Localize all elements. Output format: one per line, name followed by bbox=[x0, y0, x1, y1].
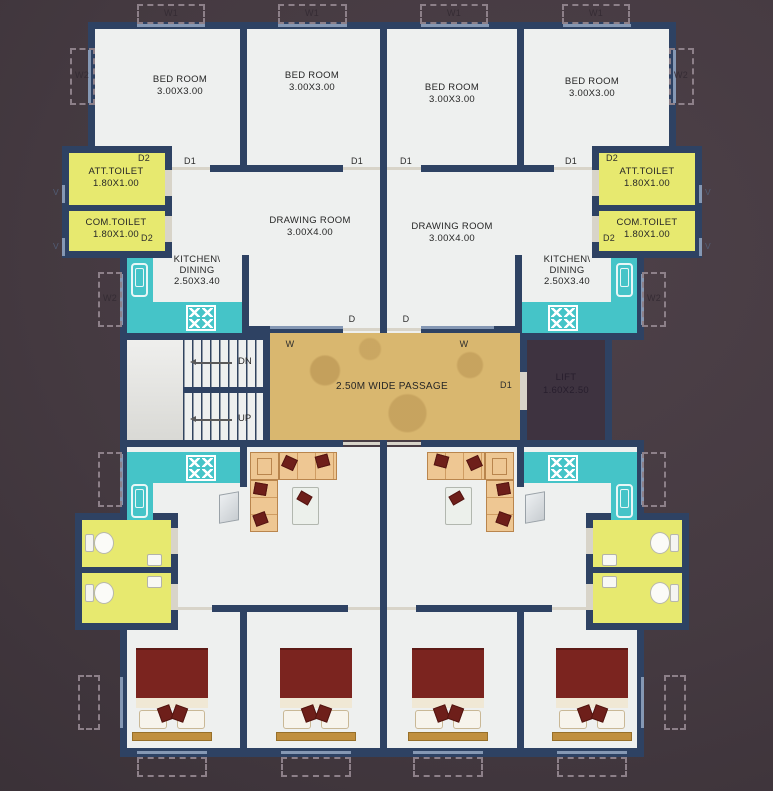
door-marker-d2: D2 bbox=[141, 233, 153, 244]
bed-blanket bbox=[280, 648, 352, 698]
lift-label: LIFT bbox=[556, 372, 577, 383]
drawing-room-right-dims: 3.00X4.00 bbox=[429, 233, 475, 244]
toilet-icon bbox=[85, 534, 94, 552]
com-toilet-left-label: COM.TOILET bbox=[86, 217, 147, 228]
up-arrow-icon bbox=[196, 419, 232, 421]
wall bbox=[515, 255, 522, 333]
wall bbox=[210, 165, 343, 172]
wall bbox=[380, 440, 387, 748]
att-toilet-left-dims: 1.80X1.00 bbox=[93, 178, 139, 189]
door-opening bbox=[586, 584, 593, 610]
door-marker-d: D bbox=[403, 314, 410, 325]
bedroom-3-dims: 3.00X3.00 bbox=[429, 94, 475, 105]
wall bbox=[212, 605, 348, 612]
sink-icon bbox=[616, 263, 633, 297]
window-projection bbox=[664, 675, 686, 730]
wall bbox=[120, 333, 127, 447]
dn-arrow-icon bbox=[196, 362, 232, 364]
vent-mark bbox=[699, 185, 702, 203]
stair-landing bbox=[127, 340, 183, 440]
bedroom-2-label: BED ROOM bbox=[285, 70, 339, 81]
window-projection bbox=[78, 675, 100, 730]
bed-sheet bbox=[412, 698, 484, 708]
wall bbox=[240, 29, 247, 172]
window-marker-w1: W1 bbox=[447, 8, 461, 19]
wall bbox=[421, 440, 522, 447]
wall bbox=[520, 440, 644, 447]
att-toilet-left-label: ATT.TOILET bbox=[89, 166, 144, 177]
stove-icon bbox=[548, 455, 578, 481]
door-leaf bbox=[219, 491, 239, 524]
basin-icon bbox=[602, 576, 617, 588]
wall bbox=[240, 612, 247, 748]
lift-door-opening bbox=[520, 372, 527, 410]
toilet-icon bbox=[94, 532, 114, 554]
door-opening bbox=[554, 167, 592, 170]
bed-base bbox=[552, 732, 632, 741]
vent-mark bbox=[62, 238, 65, 256]
wall bbox=[263, 333, 270, 447]
wall bbox=[380, 22, 387, 333]
window-projection bbox=[281, 757, 351, 777]
toilet-icon bbox=[650, 532, 670, 554]
com-toilet-right-label: COM.TOILET bbox=[617, 217, 678, 228]
door-marker-d1-lift: D1 bbox=[500, 380, 512, 391]
door-opening bbox=[165, 170, 172, 196]
drawing-room-left-dims: 3.00X4.00 bbox=[287, 227, 333, 238]
door-marker-d1: D1 bbox=[351, 156, 363, 167]
kitchen-counter-bot-left-h bbox=[127, 452, 240, 483]
door-opening bbox=[178, 607, 212, 610]
window-mark bbox=[421, 326, 494, 329]
bed-sheet bbox=[556, 698, 628, 708]
vent-marker-v: V bbox=[705, 187, 711, 198]
wall bbox=[242, 440, 343, 447]
window-projection bbox=[642, 452, 666, 507]
door-opening bbox=[165, 216, 172, 242]
bed-blanket bbox=[136, 648, 208, 698]
bedroom-3-label: BED ROOM bbox=[425, 82, 479, 93]
door-marker-d2: D2 bbox=[603, 233, 615, 244]
door-marker-d1: D1 bbox=[184, 156, 196, 167]
sink-icon bbox=[131, 484, 148, 518]
stove-icon bbox=[186, 305, 216, 331]
drawing-room-left-label: DRAWING ROOM bbox=[269, 215, 350, 226]
wall bbox=[605, 333, 612, 447]
kitchen-right-label1: KITCHEN\ bbox=[544, 254, 591, 265]
wall bbox=[517, 29, 524, 172]
window-mark bbox=[270, 326, 343, 329]
wall bbox=[240, 447, 247, 487]
window-mark bbox=[281, 751, 351, 754]
kitchen-left-label1: KITCHEN\ bbox=[174, 254, 221, 265]
kitchen-right-dims: 2.50X3.40 bbox=[544, 276, 590, 287]
stair-mid-wall bbox=[183, 387, 263, 393]
kitchen-counter-top-right-h bbox=[522, 302, 637, 333]
window-mark bbox=[641, 677, 644, 728]
window-marker-w1: W1 bbox=[589, 8, 603, 19]
passage-label: 2.50M WIDE PASSAGE bbox=[336, 381, 448, 392]
door-marker-d: D bbox=[349, 314, 356, 325]
window-marker-w2: W2 bbox=[75, 70, 89, 81]
sofa-corner-table bbox=[250, 452, 279, 480]
door-opening bbox=[343, 328, 380, 331]
att-toilet-right-label: ATT.TOILET bbox=[620, 166, 675, 177]
toilet-icon bbox=[670, 534, 679, 552]
bedroom-2-dims: 3.00X3.00 bbox=[289, 82, 335, 93]
door-opening bbox=[592, 216, 599, 242]
bed-base bbox=[408, 732, 488, 741]
window-marker-w2: W2 bbox=[647, 293, 661, 304]
att-toilet-right-dims: 1.80X1.00 bbox=[624, 178, 670, 189]
door-opening bbox=[387, 442, 421, 445]
door-opening bbox=[586, 528, 593, 554]
drawing-room-right-label: DRAWING ROOM bbox=[411, 221, 492, 232]
window-projection bbox=[413, 757, 483, 777]
vent-mark bbox=[699, 238, 702, 256]
window-mark bbox=[557, 751, 627, 754]
vent-marker-v: V bbox=[705, 241, 711, 252]
kitchen-counter-bot-right-h bbox=[524, 452, 637, 483]
door-opening bbox=[343, 442, 380, 445]
door-leaf bbox=[525, 491, 545, 524]
wall bbox=[517, 612, 524, 748]
door-opening bbox=[343, 167, 380, 170]
window-marker-w2: W2 bbox=[674, 70, 688, 81]
stairs-dn-label: DN bbox=[238, 356, 252, 367]
toilet-icon bbox=[85, 584, 94, 602]
bed-base bbox=[132, 732, 212, 741]
sink-icon bbox=[616, 484, 633, 518]
window-projection bbox=[98, 452, 122, 507]
kitchen-left-label2: DINING bbox=[179, 265, 214, 276]
floor-plan: BED ROOM 3.00X3.00 BED ROOM 3.00X3.00 BE… bbox=[0, 0, 773, 791]
bedroom-1-label: BED ROOM bbox=[153, 74, 207, 85]
bed-blanket bbox=[412, 648, 484, 698]
stove-icon bbox=[186, 455, 216, 481]
wall bbox=[517, 447, 524, 487]
door-opening bbox=[592, 170, 599, 196]
com-toilet-right-dims: 1.80X1.00 bbox=[624, 229, 670, 240]
sofa-corner-table bbox=[485, 452, 514, 480]
basin-icon bbox=[602, 554, 617, 566]
sofa-cushion bbox=[496, 482, 511, 496]
door-opening bbox=[171, 528, 178, 554]
basin-icon bbox=[147, 554, 162, 566]
basin-icon bbox=[147, 576, 162, 588]
stairs-up-label: UP bbox=[238, 413, 251, 424]
wall bbox=[120, 333, 270, 340]
toilet-icon bbox=[650, 582, 670, 604]
window-projection bbox=[137, 757, 207, 777]
door-marker-d2: D2 bbox=[606, 153, 618, 164]
bedroom-1-dims: 3.00X3.00 bbox=[157, 86, 203, 97]
stove-icon bbox=[548, 305, 578, 331]
bed-blanket bbox=[556, 648, 628, 698]
window-marker-w1: W1 bbox=[164, 8, 178, 19]
window-mark bbox=[563, 24, 631, 27]
com-toilet-left-dims: 1.80X1.00 bbox=[93, 229, 139, 240]
wall bbox=[520, 333, 644, 340]
kitchen-left-dims: 2.50X3.40 bbox=[174, 276, 220, 287]
vent-marker-v: V bbox=[53, 241, 59, 252]
bed-sheet bbox=[280, 698, 352, 708]
window-mark bbox=[137, 751, 207, 754]
lift-dims: 1.60X2.50 bbox=[543, 385, 589, 396]
door-opening bbox=[387, 167, 421, 170]
door-opening bbox=[171, 584, 178, 610]
sofa-cushion bbox=[253, 482, 268, 496]
window-mark bbox=[278, 24, 347, 27]
wall bbox=[242, 255, 249, 333]
bed-base bbox=[276, 732, 356, 741]
wall bbox=[416, 605, 552, 612]
window-projection bbox=[557, 757, 627, 777]
window-marker-w2: W2 bbox=[103, 293, 117, 304]
door-opening bbox=[552, 607, 586, 610]
window-marker-w: W bbox=[460, 339, 469, 350]
door-marker-d2: D2 bbox=[138, 153, 150, 164]
bedroom-4-dims: 3.00X3.00 bbox=[569, 88, 615, 99]
door-opening bbox=[387, 607, 416, 610]
kitchen-right-label2: DINING bbox=[549, 265, 584, 276]
door-opening bbox=[348, 607, 380, 610]
wall bbox=[421, 165, 554, 172]
window-marker-w1: W1 bbox=[305, 8, 319, 19]
sink-icon bbox=[131, 263, 148, 297]
kitchen-counter-top-left-h bbox=[127, 302, 242, 333]
toilet-icon bbox=[670, 584, 679, 602]
window-mark bbox=[120, 677, 123, 728]
door-opening bbox=[387, 328, 421, 331]
door-opening bbox=[172, 167, 210, 170]
door-marker-d1: D1 bbox=[565, 156, 577, 167]
bed-sheet bbox=[136, 698, 208, 708]
door-marker-d1: D1 bbox=[400, 156, 412, 167]
window-mark bbox=[137, 24, 205, 27]
toilet-icon bbox=[94, 582, 114, 604]
window-marker-w: W bbox=[286, 339, 295, 350]
vent-marker-v: V bbox=[53, 187, 59, 198]
window-mark bbox=[421, 24, 489, 27]
vent-mark bbox=[62, 185, 65, 203]
window-mark bbox=[413, 751, 483, 754]
bedroom-4-label: BED ROOM bbox=[565, 76, 619, 87]
